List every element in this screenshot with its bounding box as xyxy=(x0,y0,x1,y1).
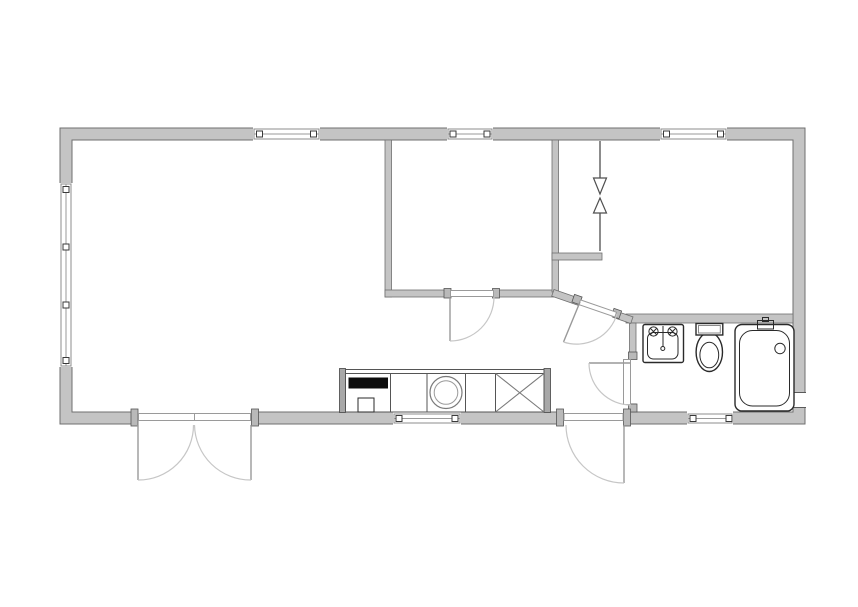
wall-bedroom1-south-right xyxy=(498,290,558,297)
bathroom-door xyxy=(589,352,637,412)
direction-arrows xyxy=(594,141,607,251)
window-tick xyxy=(690,416,696,422)
bathtub-icon xyxy=(735,318,794,412)
wall-bedroom1-left xyxy=(385,140,392,297)
toilet-icon xyxy=(696,324,723,372)
door-swing-arc xyxy=(450,297,494,341)
window-tick xyxy=(63,358,69,364)
door-swing-arc xyxy=(564,314,618,344)
bathroom-fixtures xyxy=(643,318,794,412)
floor-plan-page xyxy=(0,0,858,607)
counter-outline xyxy=(346,370,545,413)
window-tick xyxy=(396,416,402,422)
wall-closet-stub xyxy=(552,253,602,260)
door-jamb xyxy=(131,409,138,426)
door-leaf xyxy=(564,302,581,342)
kitchen-window xyxy=(394,414,460,423)
window-tick xyxy=(257,131,263,137)
window-tick xyxy=(718,131,724,137)
counter-side-panel-right xyxy=(544,369,551,413)
door-jamb xyxy=(557,409,564,426)
door-swing-arc-left xyxy=(138,425,194,480)
top-window-2 xyxy=(448,129,492,139)
bathroom-window xyxy=(688,414,732,423)
double-entry-door xyxy=(131,409,259,480)
window-tick xyxy=(452,416,458,422)
kitchen-counter xyxy=(340,369,551,413)
window-mullion xyxy=(63,244,69,250)
door-closed-leaf xyxy=(451,291,494,297)
door-closed-leaf xyxy=(624,360,631,405)
stove-black-band xyxy=(349,378,389,389)
door-swing-arc-right xyxy=(195,425,252,480)
angled-hall-door xyxy=(564,294,622,344)
top-window-3 xyxy=(661,129,726,139)
window-tick xyxy=(63,187,69,193)
wash-basin-icon xyxy=(643,325,684,363)
window-tick xyxy=(311,131,317,137)
window-mullion xyxy=(63,302,69,308)
door-jamb xyxy=(624,409,631,426)
wall-bedroom1-south-left xyxy=(385,290,445,297)
down-arrow-icon xyxy=(594,178,607,194)
window-tick xyxy=(450,131,456,137)
counter-side-panel-left xyxy=(340,369,346,413)
up-arrow-icon xyxy=(594,198,607,213)
door-jamb xyxy=(252,409,259,426)
tub-outline xyxy=(735,325,794,412)
door-jamb xyxy=(629,352,638,360)
door-closed-leaf xyxy=(564,414,623,421)
left-triple-window xyxy=(61,184,71,366)
door-swing-arc xyxy=(566,425,624,483)
window-tick xyxy=(726,416,732,422)
floor-plan-drawing xyxy=(0,0,858,607)
window-tick xyxy=(484,131,490,137)
bedroom-door xyxy=(444,289,500,342)
window-tick xyxy=(664,131,670,137)
wall-bedroom2-left xyxy=(552,140,559,292)
back-door xyxy=(557,409,631,483)
door-jamb xyxy=(444,289,451,299)
door-closed-leaf xyxy=(579,300,617,317)
top-window-1 xyxy=(254,129,319,139)
